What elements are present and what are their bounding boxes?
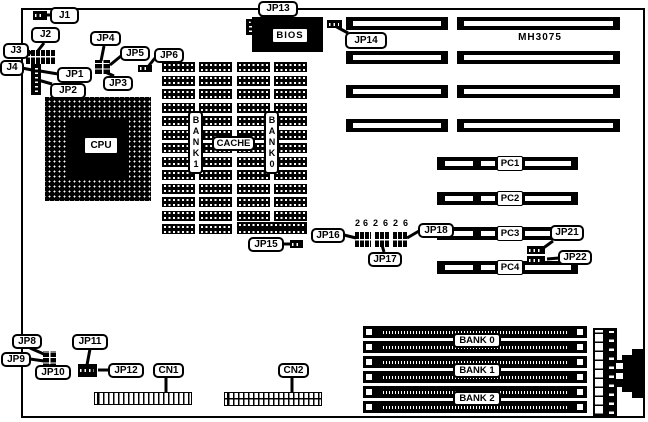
- cpu-label: CPU: [84, 137, 118, 154]
- pin-number: 6: [383, 219, 388, 228]
- jp2-label: JP2: [50, 83, 86, 99]
- jp16-label: JP16: [311, 228, 345, 243]
- jp6-label: JP6: [154, 48, 184, 63]
- jp8-label: JP8: [12, 334, 42, 349]
- jp1-label: JP1: [57, 67, 92, 83]
- bios-label: BIOS: [272, 28, 308, 43]
- jp5-label: JP5: [120, 46, 150, 61]
- pin-number: 6: [363, 219, 368, 228]
- j1-label: J1: [50, 7, 79, 24]
- jp3-label: JP3: [103, 76, 133, 91]
- cache-label: CACHE: [212, 136, 255, 151]
- pin-number: 2: [355, 219, 360, 228]
- bank1-label: BANK1: [188, 111, 203, 174]
- jp15-label: JP15: [248, 237, 284, 252]
- jp4-label: JP4: [90, 31, 121, 46]
- jp10-label: JP10: [35, 365, 71, 380]
- jp13-label: JP13: [258, 1, 298, 17]
- pin-number: 6: [403, 219, 408, 228]
- j3-label: J3: [3, 43, 29, 59]
- simm-bank2-label: BANK 2: [453, 391, 501, 406]
- jp22-label: JP22: [558, 250, 592, 265]
- j4-label: J4: [0, 60, 24, 76]
- j2-label: J2: [31, 27, 60, 43]
- simm-bank1-label: BANK 1: [453, 363, 501, 378]
- jp12-label: JP12: [108, 363, 144, 378]
- simm-bank0-label: BANK 0: [453, 333, 501, 348]
- jp11-label: JP11: [72, 334, 108, 350]
- cn2-label: CN2: [278, 363, 309, 378]
- bank0-label: BANK0: [264, 111, 279, 174]
- leader-lines: [0, 0, 648, 422]
- motherboard-diagram: J1 J2 J3 J4 JP1 JP2 JP4 JP5 JP6 JP3 CPU …: [0, 0, 648, 422]
- jp21-label: JP21: [550, 225, 584, 241]
- cn1-label: CN1: [153, 363, 184, 378]
- jp9-label: JP9: [1, 352, 31, 367]
- pin-number: 2: [393, 219, 398, 228]
- pin-number: 2: [373, 219, 378, 228]
- jp14-label: JP14: [345, 32, 387, 49]
- jp18-label: JP18: [418, 223, 454, 238]
- jp17-label: JP17: [368, 252, 402, 267]
